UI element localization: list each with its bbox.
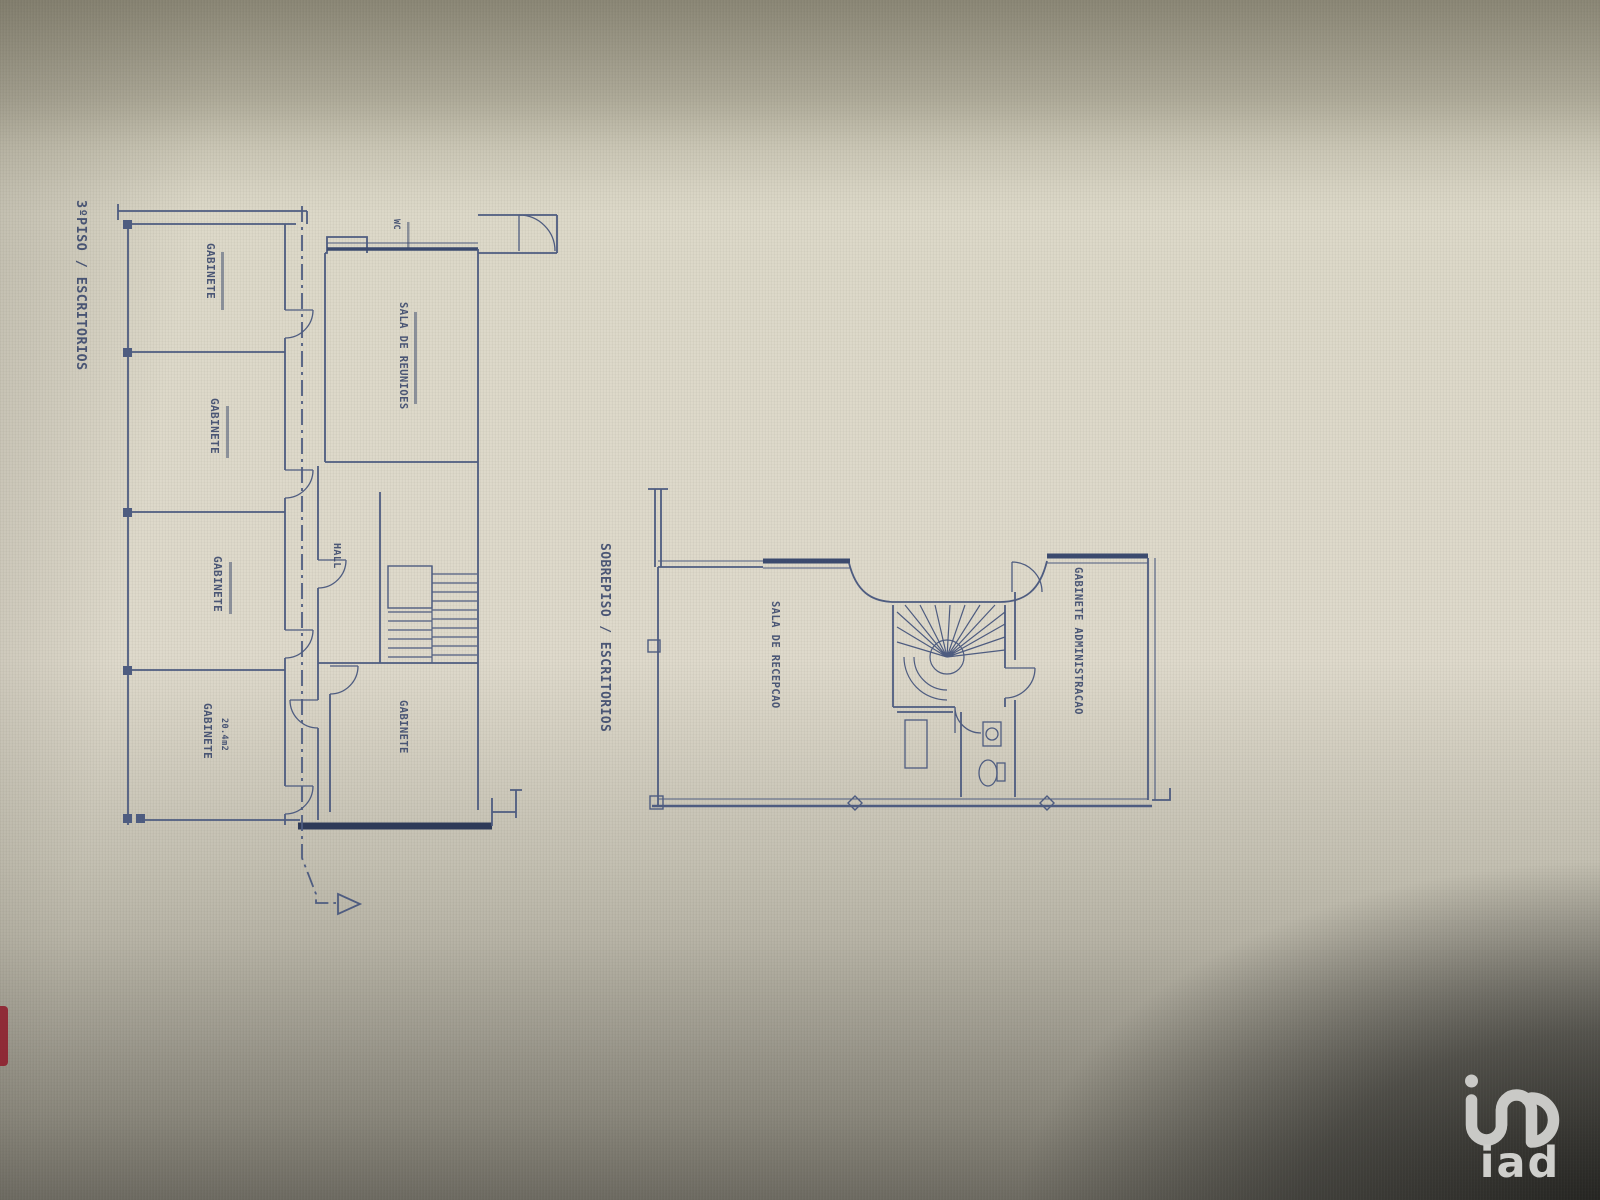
room-label-hall: HALL (331, 543, 342, 569)
entry-arrow-icon (338, 894, 360, 914)
plan-right-title: SOBREPISO / ESCRITORIOS (597, 543, 612, 732)
iad-logo-icon (1465, 1075, 1554, 1143)
spiral-staircase (897, 605, 1005, 700)
iad-logo-text: iad (1480, 1138, 1561, 1188)
red-edge-mark (0, 1006, 8, 1066)
plan-right: SOBREPISO / ESCRITORIOS SALA DE RECEPCAO… (597, 489, 1170, 810)
room-label-gabinete5: GABINETE (397, 700, 409, 754)
room-label-sala-recepcao: SALA DE RECEPCAO (769, 601, 781, 709)
illegible-text-smudge (221, 222, 417, 614)
room-label-wc: WC (391, 219, 401, 230)
room-label-gabinete2: GABINETE (208, 398, 221, 454)
floorplan-drawing: 3ºPISO / ESCRITORIOS GABINETE GABINETE G… (0, 0, 1600, 1200)
room-label-gabinete3: GABINETE (211, 556, 224, 612)
stair-treads (388, 566, 477, 663)
room-label-gabinete4: GABINETE (201, 703, 214, 759)
iad-watermark: iad (1465, 1075, 1560, 1189)
plan-right-walls (648, 489, 1170, 810)
plan-left: 3ºPISO / ESCRITORIOS GABINETE GABINETE G… (73, 200, 557, 914)
column-markers (123, 220, 145, 823)
room-label-gabinete-admin: GABINETE ADMINISTRACAO (1072, 567, 1084, 715)
photo-canvas: 3ºPISO / ESCRITORIOS GABINETE GABINETE G… (0, 0, 1600, 1200)
plan-left-walls (118, 204, 557, 826)
plan-left-title: 3ºPISO / ESCRITORIOS (73, 200, 89, 371)
room-label-gabinete1: GABINETE (204, 243, 217, 299)
room-area-gabinete4: 20.4m2 (219, 718, 229, 751)
room-label-sala-reunioes: SALA DE REUNIOES (397, 302, 409, 410)
